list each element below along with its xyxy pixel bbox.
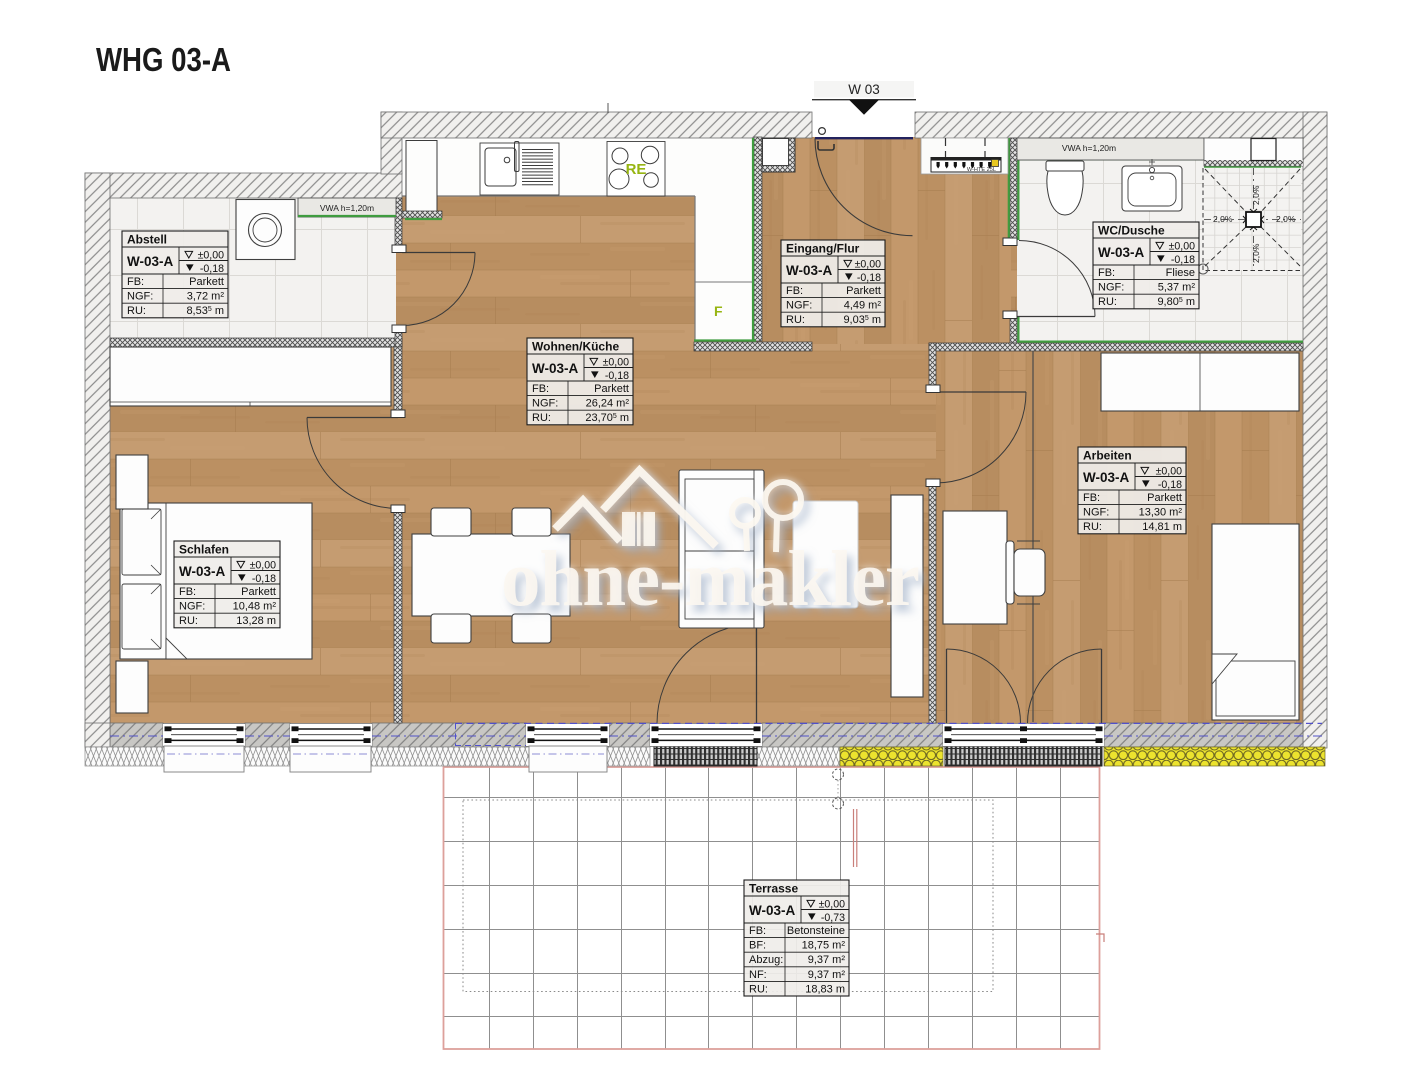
- svg-text:Fliese: Fliese: [1166, 267, 1195, 279]
- svg-text:RU:: RU:: [532, 412, 551, 424]
- svg-text:13,30 m²: 13,30 m²: [1139, 507, 1183, 519]
- svg-text:±0,00: ±0,00: [1156, 465, 1183, 477]
- svg-text:RU:: RU:: [127, 305, 146, 317]
- svg-text:VWA h=1,20m: VWA h=1,20m: [1062, 143, 1116, 153]
- svg-text:±0,00: ±0,00: [855, 258, 882, 270]
- svg-text:NF:: NF:: [749, 969, 767, 981]
- svg-text:FB:: FB:: [1098, 267, 1115, 279]
- svg-text:W-HTE 25L: W-HTE 25L: [967, 167, 996, 173]
- svg-text:-0,18: -0,18: [200, 263, 224, 275]
- svg-text:Eingang/Flur: Eingang/Flur: [786, 242, 860, 256]
- svg-text:2,0%: 2,0%: [1251, 243, 1261, 263]
- svg-text:NGF:: NGF:: [1098, 282, 1124, 294]
- svg-text:FB:: FB:: [179, 586, 196, 598]
- svg-text:RE: RE: [626, 161, 647, 178]
- svg-text:±0,00: ±0,00: [819, 898, 846, 910]
- svg-text:9,37 m²: 9,37 m²: [808, 954, 846, 966]
- svg-text:Schlafen: Schlafen: [179, 543, 229, 557]
- svg-text:W 03: W 03: [848, 82, 880, 97]
- svg-text:13,28 m: 13,28 m: [236, 615, 276, 627]
- svg-text:W-03-A: W-03-A: [179, 564, 225, 579]
- svg-text:NGF:: NGF:: [786, 300, 812, 312]
- svg-text:RU:: RU:: [786, 314, 805, 326]
- svg-text:NGF:: NGF:: [179, 601, 205, 613]
- svg-text:NGF:: NGF:: [127, 291, 153, 303]
- svg-text:W-03-A: W-03-A: [749, 903, 795, 918]
- svg-text:RU:: RU:: [1098, 296, 1117, 308]
- svg-text:2,0%: 2,0%: [1213, 214, 1233, 224]
- svg-text:FB:: FB:: [786, 285, 803, 297]
- svg-text:FB:: FB:: [532, 383, 549, 395]
- svg-text:NGF:: NGF:: [532, 398, 558, 410]
- svg-text:2,0%: 2,0%: [1276, 214, 1296, 224]
- svg-text:-0,18: -0,18: [857, 272, 881, 284]
- svg-text:RU:: RU:: [1083, 521, 1102, 533]
- svg-text:W-03-A: W-03-A: [1098, 245, 1144, 260]
- svg-text:W-03-A: W-03-A: [532, 361, 578, 376]
- svg-text:BF:: BF:: [749, 940, 766, 952]
- svg-text:Parkett: Parkett: [241, 586, 276, 598]
- svg-text:Abstell: Abstell: [127, 233, 167, 247]
- svg-text:FB:: FB:: [1083, 492, 1100, 504]
- svg-text:9,805 m: 9,805 m: [1157, 296, 1195, 308]
- svg-text:Wohnen/Küche: Wohnen/Küche: [532, 340, 619, 354]
- svg-text:23,705 m: 23,705 m: [585, 412, 629, 424]
- svg-text:FB:: FB:: [127, 276, 144, 288]
- svg-text:WHG 03-A: WHG 03-A: [96, 41, 231, 78]
- svg-text:-0,18: -0,18: [1171, 254, 1195, 266]
- svg-text:3,72 m²: 3,72 m²: [187, 291, 225, 303]
- svg-text:RU:: RU:: [179, 615, 198, 627]
- svg-text:±0,00: ±0,00: [1169, 240, 1196, 252]
- svg-text:9,035 m: 9,035 m: [843, 314, 881, 326]
- svg-text:F: F: [714, 303, 723, 319]
- svg-text:Arbeiten: Arbeiten: [1083, 449, 1132, 463]
- svg-text:26,24 m²: 26,24 m²: [586, 398, 630, 410]
- svg-text:18,83 m: 18,83 m: [805, 983, 845, 995]
- svg-text:W-03-A: W-03-A: [786, 263, 832, 278]
- svg-text:VWA h=1,20m: VWA h=1,20m: [320, 203, 374, 213]
- svg-text:Parkett: Parkett: [846, 285, 881, 297]
- svg-text:±0,00: ±0,00: [250, 559, 277, 571]
- svg-text:-0,73: -0,73: [821, 912, 845, 924]
- svg-text:-0,18: -0,18: [252, 573, 276, 585]
- svg-text:4,49 m²: 4,49 m²: [844, 300, 882, 312]
- svg-text:ohne-makler: ohne-makler: [501, 536, 920, 623]
- svg-text:RU:: RU:: [749, 983, 768, 995]
- svg-text:Terrasse: Terrasse: [749, 882, 798, 896]
- svg-text:W-03-A: W-03-A: [1083, 470, 1129, 485]
- svg-text:2,0%: 2,0%: [1251, 185, 1261, 205]
- svg-text:8,535 m: 8,535 m: [186, 305, 224, 317]
- svg-text:-0,18: -0,18: [605, 370, 629, 382]
- svg-text:18,75 m²: 18,75 m²: [802, 940, 846, 952]
- svg-text:WC/Dusche: WC/Dusche: [1098, 224, 1165, 238]
- svg-text:9,37 m²: 9,37 m²: [808, 969, 846, 981]
- svg-text:W-03-A: W-03-A: [127, 254, 173, 269]
- svg-text:-0,18: -0,18: [1158, 479, 1182, 491]
- svg-text:Parkett: Parkett: [1147, 492, 1182, 504]
- svg-text:Parkett: Parkett: [594, 383, 629, 395]
- svg-text:NGF:: NGF:: [1083, 507, 1109, 519]
- svg-text:14,81 m: 14,81 m: [1142, 521, 1182, 533]
- svg-text:FB:: FB:: [749, 925, 766, 937]
- svg-text:5,37 m²: 5,37 m²: [1158, 282, 1196, 294]
- svg-text:Parkett: Parkett: [189, 276, 224, 288]
- svg-text:±0,00: ±0,00: [198, 249, 225, 261]
- svg-text:Abzug:: Abzug:: [749, 954, 783, 966]
- svg-text:10,48 m²: 10,48 m²: [233, 601, 277, 613]
- svg-text:±0,00: ±0,00: [603, 356, 630, 368]
- svg-text:Betonsteine: Betonsteine: [787, 925, 845, 937]
